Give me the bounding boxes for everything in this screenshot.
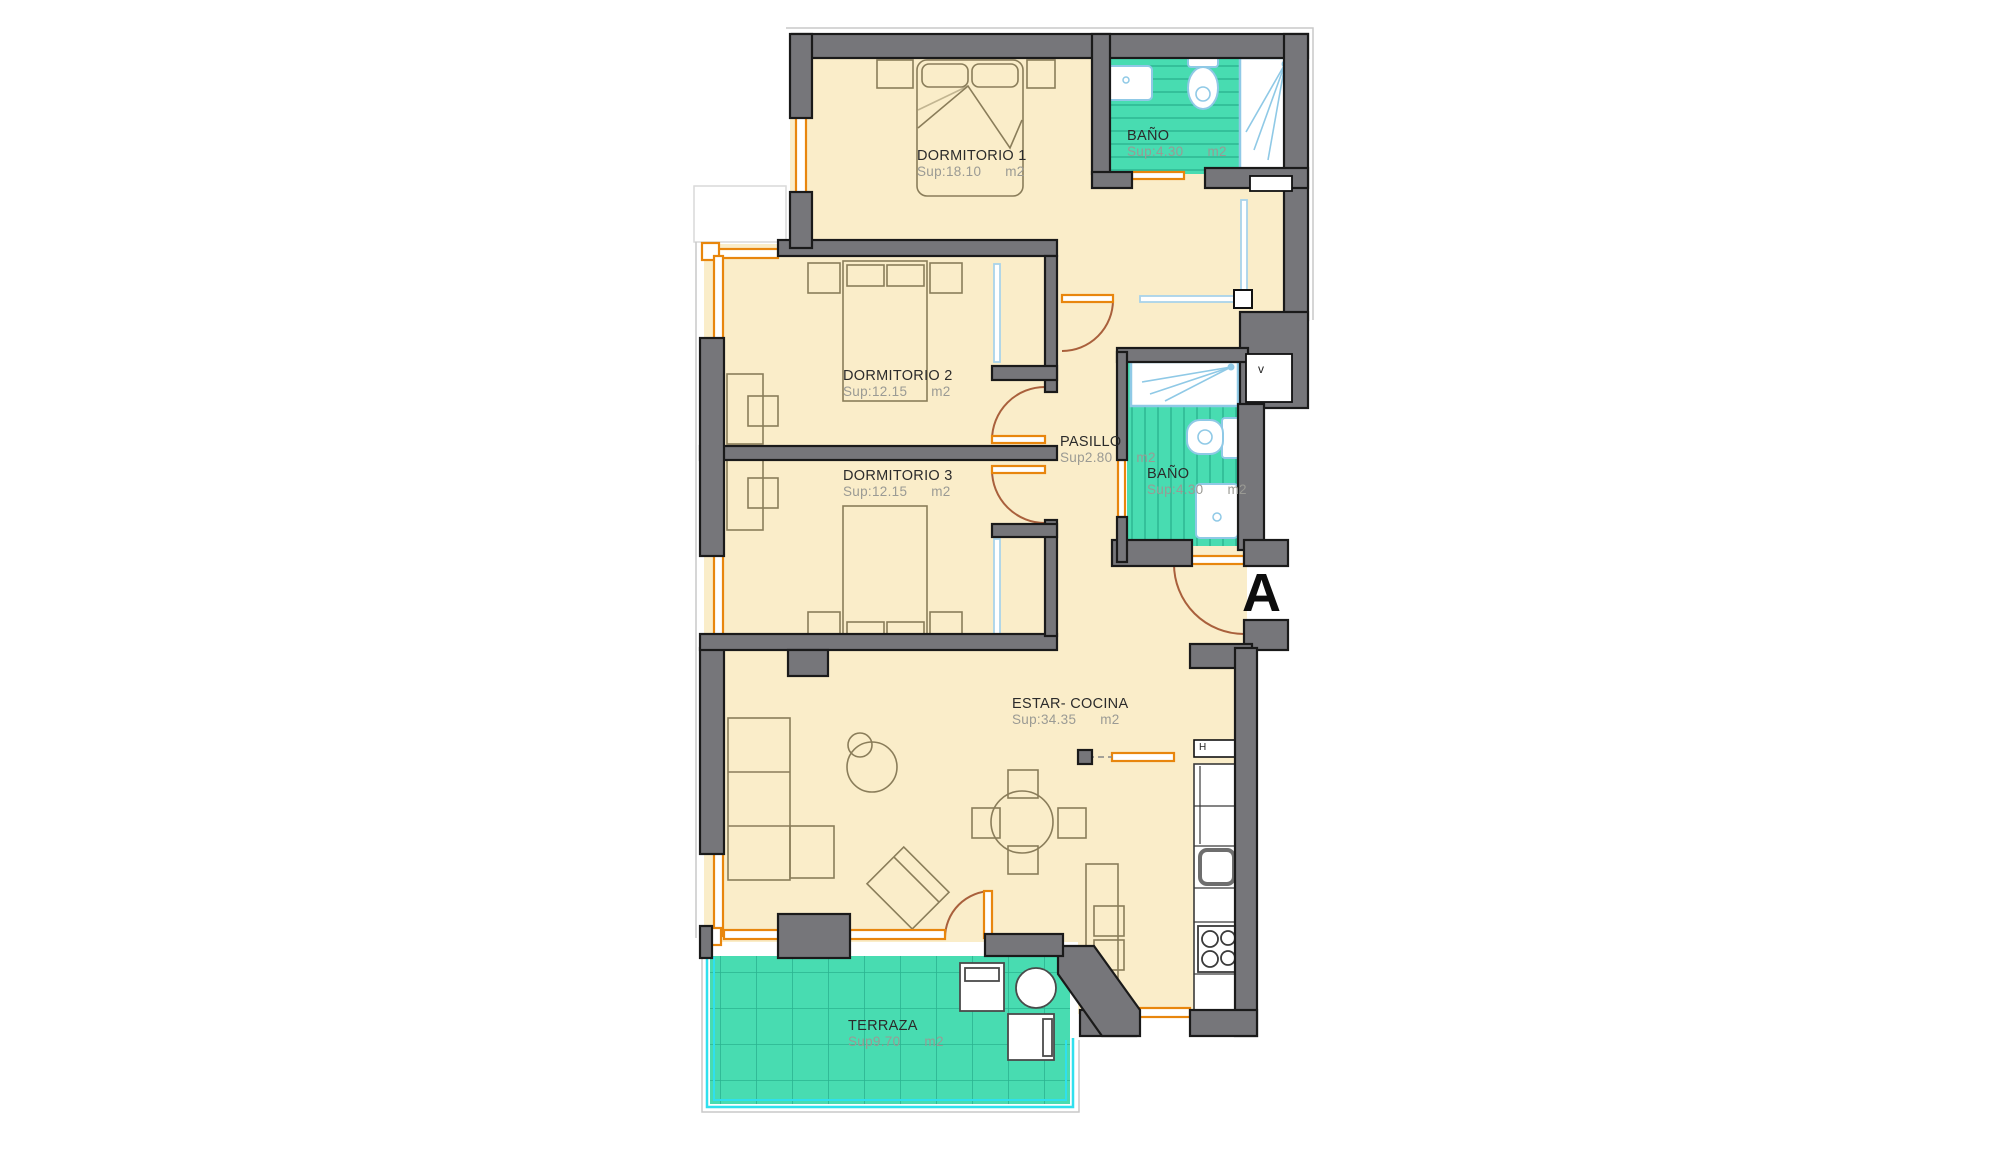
vent-shaft-box [1246, 354, 1292, 402]
pasillo-door-leaf [1062, 295, 1113, 302]
living-bottom-window-2 [850, 930, 945, 939]
dorm1-window [796, 116, 806, 194]
floor-plan-page: DORMITORIO 1 Sup:18.10m2 BAÑO Sup:4.30m2… [0, 0, 2000, 1150]
sink-icon-1 [1104, 66, 1152, 100]
dorm3-wardrobe [994, 539, 1000, 639]
dorm2-wardrobe [994, 264, 1000, 362]
dorm3-window [714, 553, 723, 635]
unit-marker-a: A [1242, 562, 1281, 624]
hall-closet-v [1241, 200, 1247, 296]
kitchen-bottom-window [1136, 1008, 1190, 1017]
dorm3-door-leaf [992, 466, 1045, 473]
floor-plan-svg [0, 0, 2000, 1150]
terrace-door-leaf [984, 891, 992, 938]
dorm2-window [714, 256, 723, 340]
living-left-window [714, 852, 723, 936]
living-bottom-window-1 [724, 930, 780, 939]
dorm2-door-leaf [992, 436, 1045, 443]
hall-closet-h [1140, 296, 1242, 302]
toilet-icon-1 [1188, 52, 1218, 109]
vent-shaft-label: v [1258, 362, 1264, 376]
bath2-sliding-door [1118, 460, 1125, 517]
hob-icon [1198, 926, 1238, 972]
entrance-door-leaf [1188, 556, 1244, 564]
hood-shaft-label: H [1199, 742, 1206, 753]
terrace-round-table [1016, 968, 1056, 1008]
bath1-sliding-door [1132, 172, 1184, 179]
toilet-icon-2 [1187, 418, 1239, 458]
kitchen-sliding-door [1112, 753, 1174, 761]
shower-icon-2 [1131, 362, 1238, 406]
sink-icon-2 [1196, 484, 1238, 538]
hall-niche [1250, 176, 1292, 191]
